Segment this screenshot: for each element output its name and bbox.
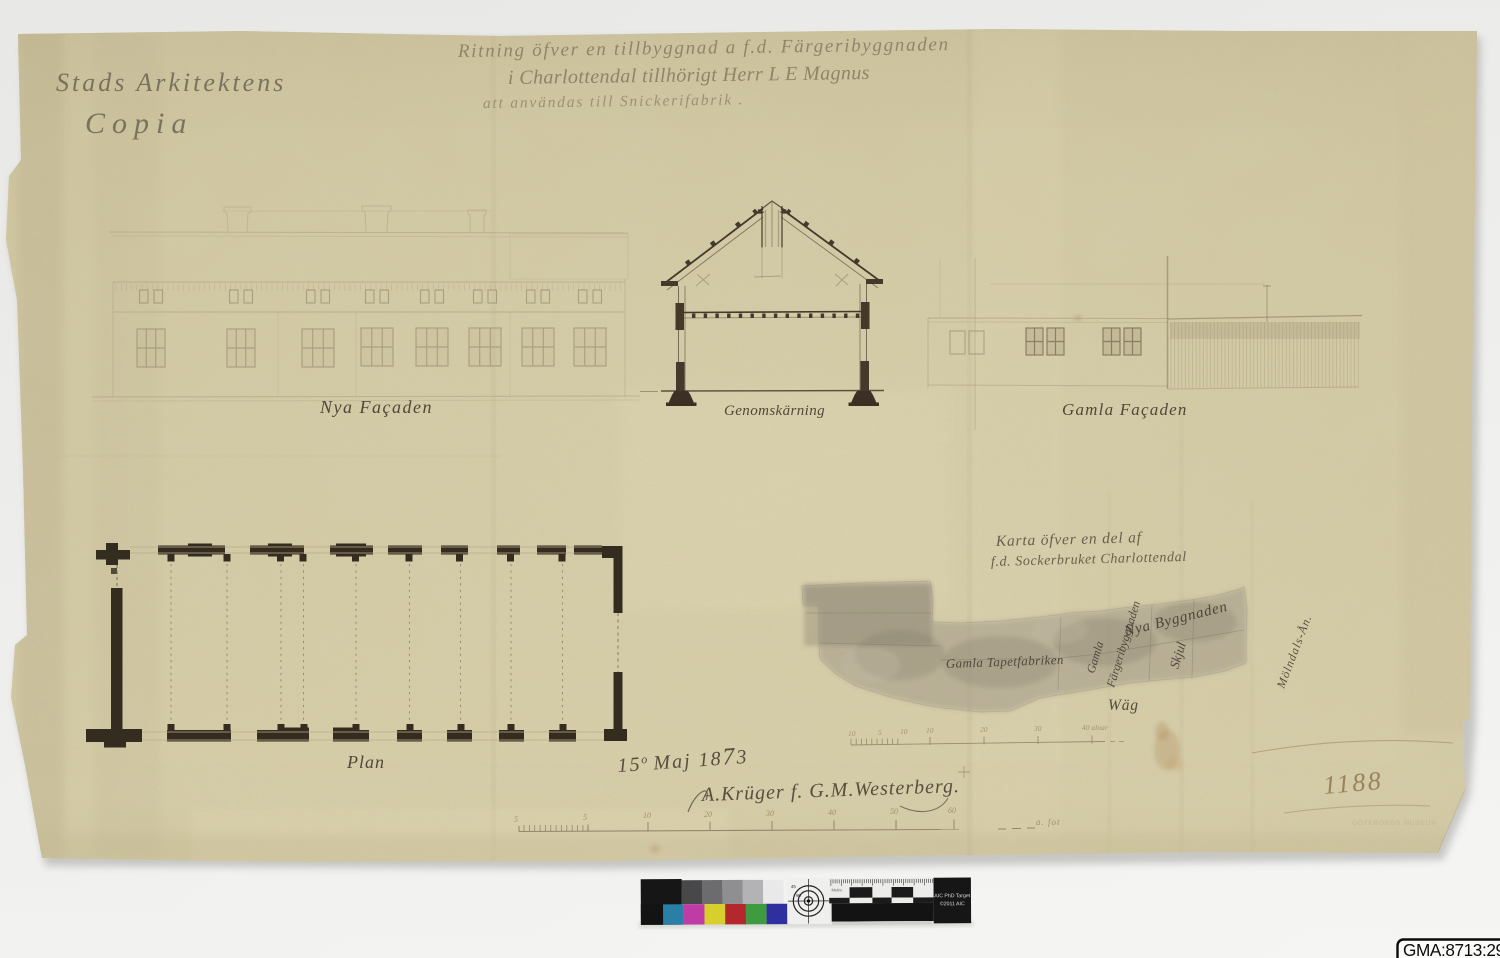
svg-text:Wäg: Wäg (1108, 697, 1139, 714)
svg-text:©2011 AIC: ©2011 AIC (940, 900, 965, 907)
svg-text:10: 10 (926, 726, 934, 735)
svg-text:50: 50 (890, 807, 898, 816)
svg-text:10: 10 (900, 727, 908, 736)
svg-text:10: 10 (643, 811, 651, 820)
svg-text:10: 10 (848, 729, 856, 738)
svg-text:1188: 1188 (1322, 766, 1384, 800)
svg-text:20: 20 (980, 725, 988, 734)
svg-text:5: 5 (583, 813, 587, 822)
svg-text:Stads Arkitektens: Stads Arkitektens (56, 68, 286, 97)
svg-text:45: 45 (791, 884, 797, 889)
svg-text:90: 90 (796, 893, 802, 898)
svg-text:30: 30 (765, 809, 774, 818)
svg-text:a. fot: a. fot (1036, 817, 1061, 827)
svg-text:60: 60 (948, 806, 956, 815)
svg-text:Metric: Metric (831, 887, 842, 892)
svg-text:GÖTEBORGS MUSEUM: GÖTEBORGS MUSEUM (1352, 819, 1437, 827)
svg-text:Plan: Plan (346, 752, 385, 772)
svg-text:GMA:8713:29: GMA:8713:29 (1403, 940, 1500, 958)
svg-text:5: 5 (514, 815, 518, 824)
svg-text:AIC PhD Target: AIC PhD Target (934, 893, 971, 899)
svg-text:Copia: Copia (85, 107, 193, 140)
svg-text:5: 5 (878, 728, 882, 737)
svg-text:40 alnar: 40 alnar (1082, 723, 1108, 732)
svg-text:Genomskärning: Genomskärning (724, 403, 825, 419)
svg-text:40: 40 (828, 808, 836, 817)
svg-text:30: 30 (1033, 724, 1042, 733)
svg-text:Nya Façaden: Nya Façaden (319, 397, 433, 417)
svg-text:20: 20 (704, 810, 712, 819)
svg-text:Gamla Façaden: Gamla Façaden (1062, 400, 1188, 419)
